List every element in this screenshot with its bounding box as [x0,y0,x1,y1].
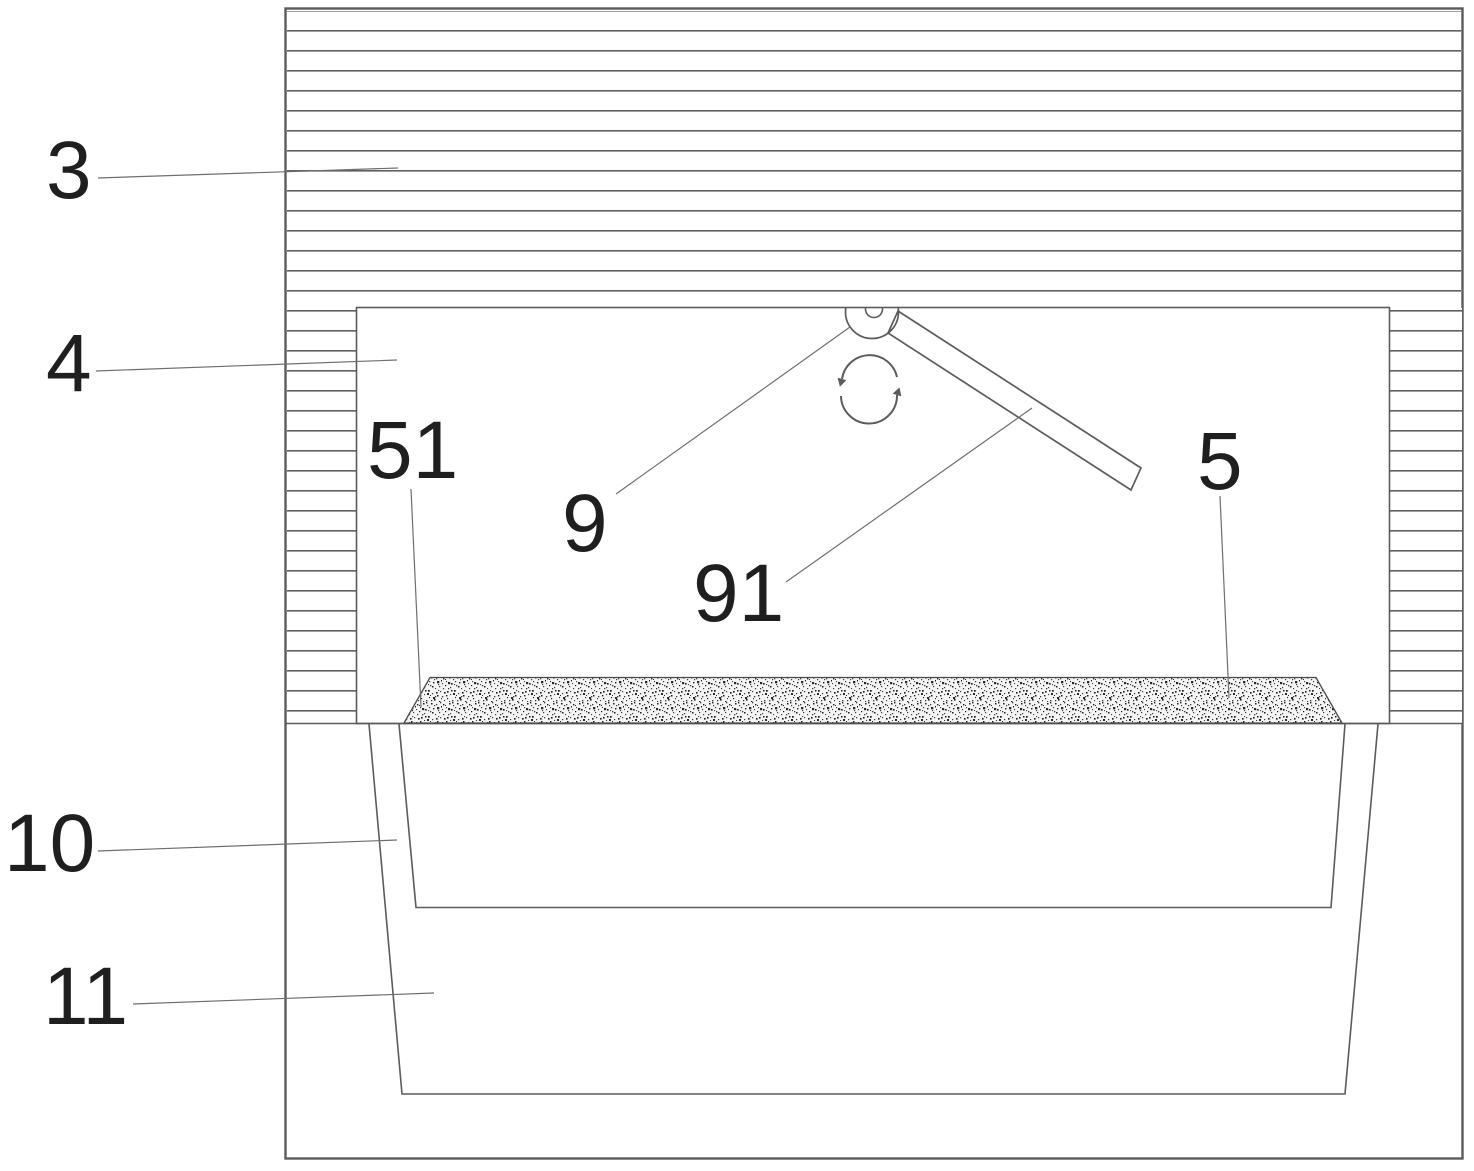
callout-leader-10 [98,840,397,851]
callout-leader-9 [616,327,850,494]
patent-figure-page: 345199151011 [0,0,1474,1171]
callout-leader-91 [786,408,1032,582]
rotation-arrowhead-left [838,378,847,387]
callout-label-3: 3 [46,125,92,216]
outer-hopper-11 [369,724,1378,1094]
rotor-arm-91 [888,311,1141,490]
hatched-left-column [287,308,356,723]
callout-label-91: 91 [693,548,784,639]
patent-figure-canvas: 345199151011 [0,0,1474,1171]
screen-layer-5 [404,678,1342,724]
callout-leader-5 [1220,496,1229,698]
hatched-right-column [1390,308,1462,723]
callout-label-51: 51 [367,405,458,496]
rotation-arc-lower [841,395,897,424]
rotation-arrows-icon [838,355,902,423]
callout-label-4: 4 [46,318,92,409]
rotation-arc-upper [842,355,897,379]
callout-leader-51 [411,489,421,707]
callout-label-9: 9 [562,478,608,569]
callout-leader-11 [133,993,434,1004]
callout-label-10: 10 [4,798,95,889]
callout-label-5: 5 [1197,416,1243,507]
inner-chamber-4 [357,308,1390,724]
callout-label-11: 11 [43,951,128,1042]
hatched-top-band-3 [287,11,1461,307]
inner-hopper-10 [399,724,1345,908]
